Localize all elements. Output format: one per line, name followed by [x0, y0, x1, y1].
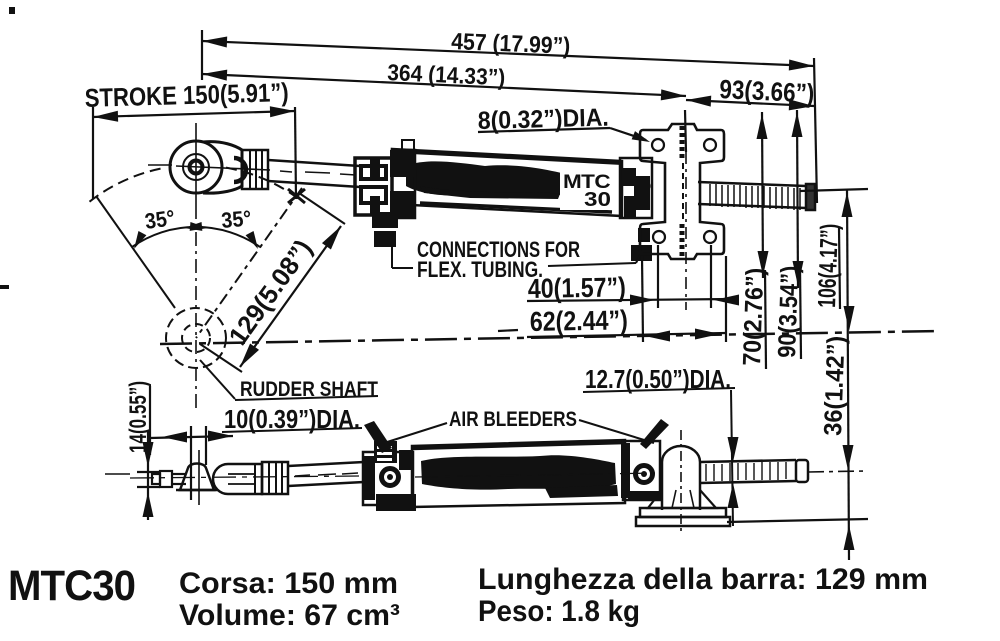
svg-text:364 (14.33”): 364 (14.33”) — [387, 59, 506, 90]
svg-text:STROKE 150(5.91”): STROKE 150(5.91”) — [84, 77, 289, 113]
svg-text:Volume: 67 cm³: Volume: 67 cm³ — [179, 599, 400, 632]
svg-text:MTC30: MTC30 — [8, 562, 135, 610]
svg-text:36(1.42”): 36(1.42”) — [819, 335, 850, 436]
svg-text:70(2.76”): 70(2.76”) — [738, 267, 769, 366]
svg-text:Peso: 1.8 kg: Peso: 1.8 kg — [478, 595, 640, 628]
svg-text:30: 30 — [584, 189, 611, 211]
svg-text:40(1.57”): 40(1.57”) — [528, 271, 627, 304]
svg-text:35°: 35° — [143, 205, 176, 234]
svg-text:FLEX. TUBING.: FLEX. TUBING. — [417, 257, 543, 282]
svg-text:457 (17.99”): 457 (17.99”) — [451, 28, 571, 59]
svg-text:90(3.54”): 90(3.54”) — [773, 265, 804, 358]
svg-text:62(2.44”): 62(2.44”) — [530, 304, 629, 337]
svg-text:Lunghezza della barra: 129 mm: Lunghezza della barra: 129 mm — [478, 563, 928, 596]
svg-text:106(4.17”): 106(4.17”) — [813, 223, 844, 308]
svg-text:93(3.66”): 93(3.66”) — [719, 74, 815, 108]
svg-text:35°: 35° — [220, 205, 252, 233]
svg-text:Corsa: 150 mm: Corsa: 150 mm — [179, 567, 398, 600]
svg-text:AIR BLEEDERS: AIR BLEEDERS — [449, 408, 577, 431]
